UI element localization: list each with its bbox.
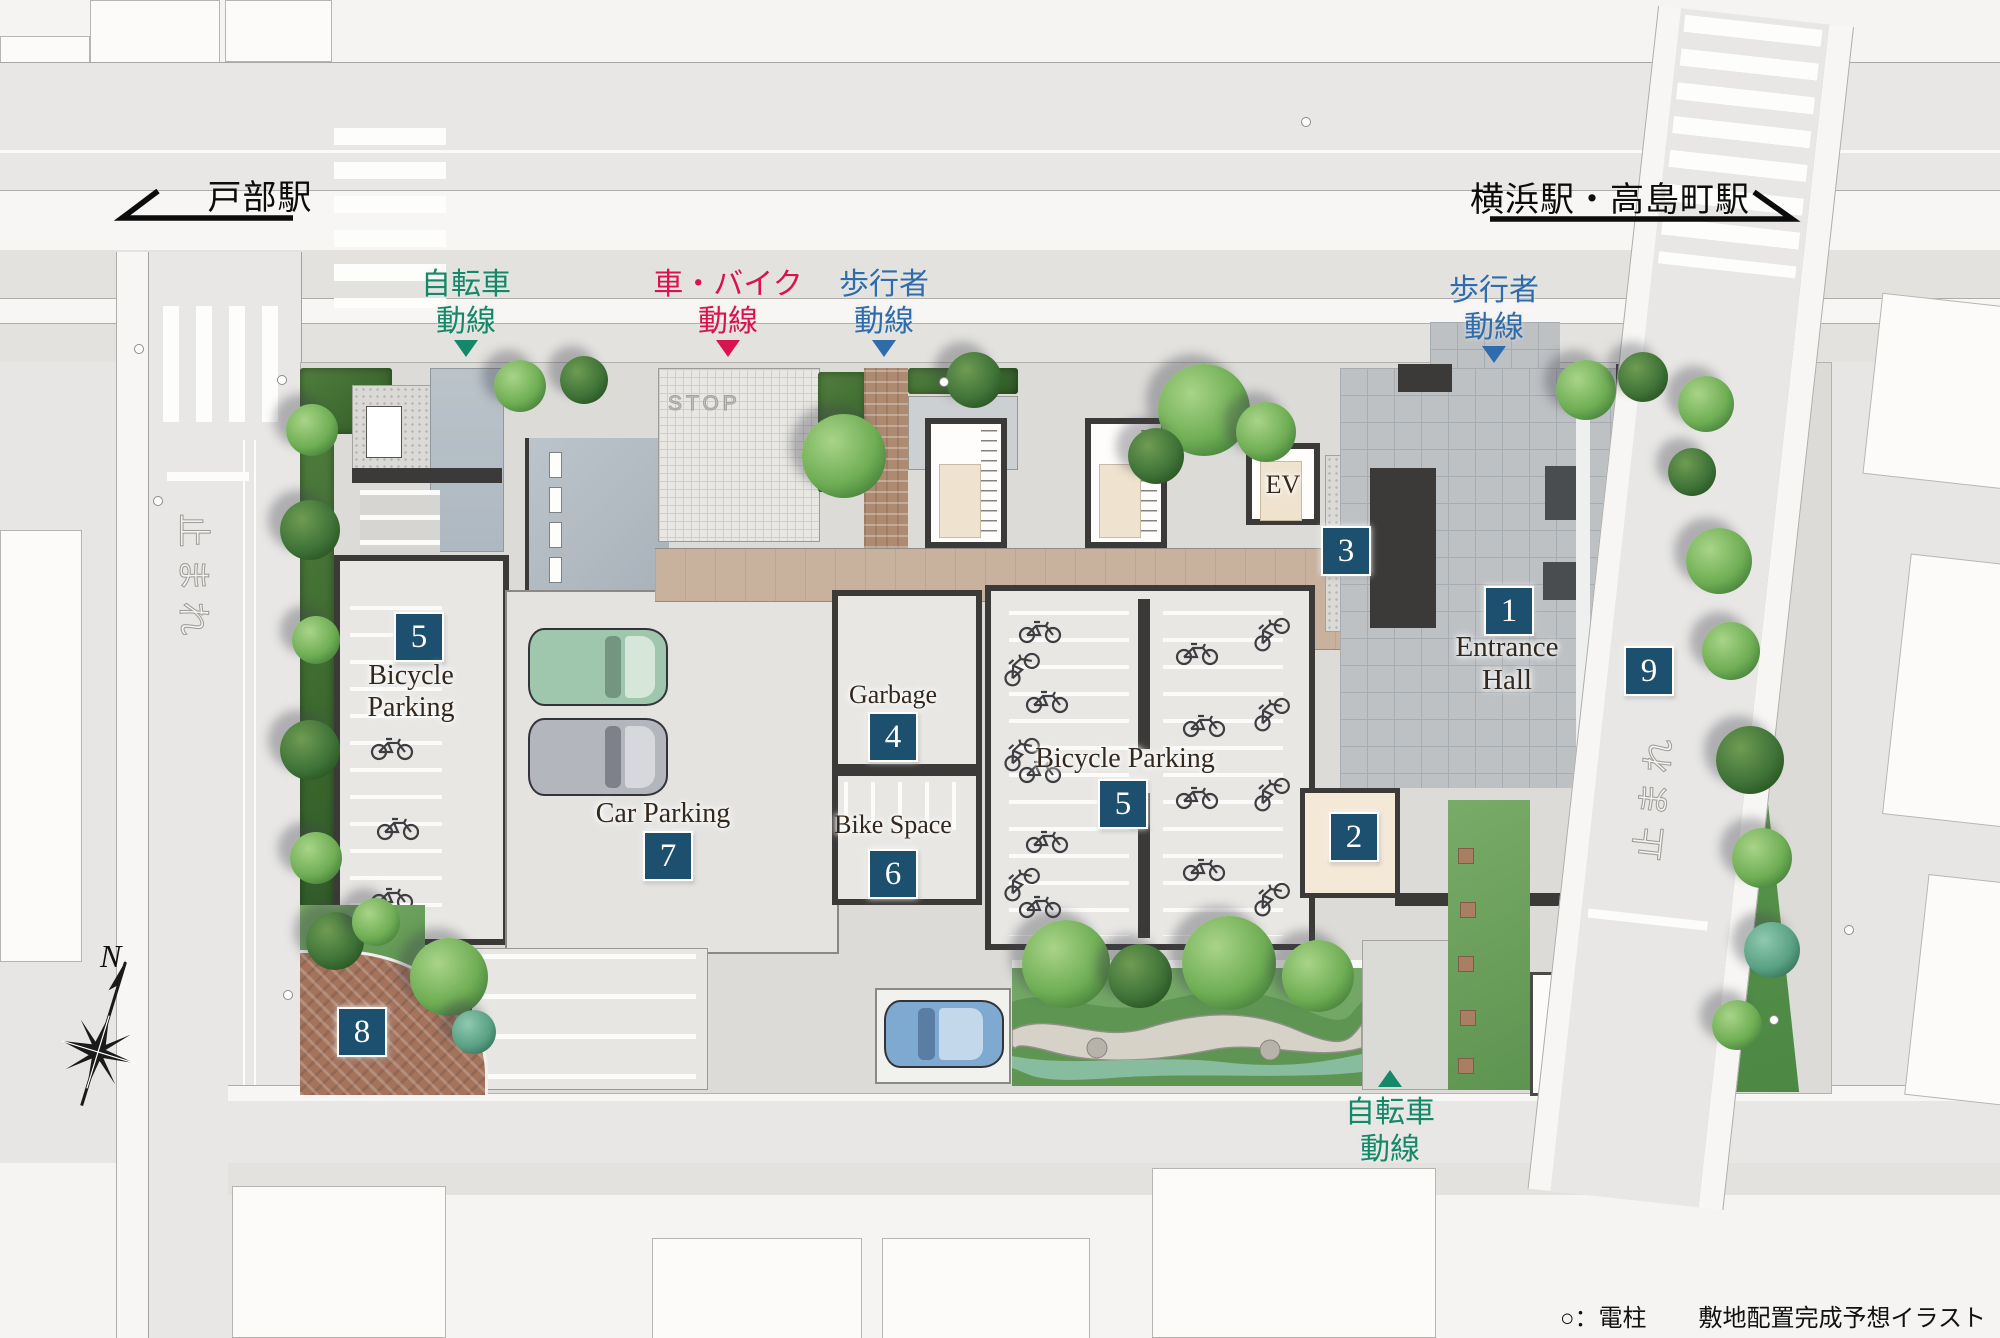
car-gray [528, 718, 668, 796]
context-building [1904, 874, 2000, 1108]
vent-slot [549, 522, 562, 548]
tree [1236, 402, 1296, 462]
vent-slot [549, 452, 562, 478]
tree [560, 356, 608, 404]
tree [1668, 448, 1716, 496]
elevator-label: EV [1248, 470, 1318, 500]
tree [1108, 944, 1172, 1008]
flow-car-bike-arrow [716, 340, 740, 357]
tree [1556, 360, 1616, 420]
station-label-yokohama: 横浜駅・高島町駅 [1455, 172, 1765, 221]
tree [802, 414, 886, 498]
label-garbage: Garbage [828, 680, 958, 710]
context-building [1152, 1168, 1436, 1338]
badge-bike-space: 6 [868, 849, 918, 899]
context-building [652, 1238, 862, 1338]
context-building [1882, 554, 2000, 829]
badge-garbage: 4 [868, 712, 918, 762]
badge-bicycle-main: 5 [1098, 779, 1148, 829]
flow-bicycle-top-arrow [454, 340, 478, 357]
skylight [366, 406, 402, 458]
utility-pole [1769, 1015, 1779, 1025]
utility-pole [1301, 117, 1311, 127]
tree [1744, 922, 1800, 978]
road-paint-stop: STOP [668, 392, 741, 416]
bicycle-exit-path [1362, 940, 1456, 1090]
wall [352, 468, 502, 483]
stop-line [1588, 909, 1708, 931]
badge-approach: 3 [1321, 526, 1371, 576]
utility-pole [1844, 925, 1854, 935]
context-building [882, 1238, 1090, 1338]
tree [1702, 622, 1760, 680]
badge-lobby: 2 [1329, 812, 1379, 862]
label-car-parking: Car Parking [563, 798, 763, 830]
tree [352, 898, 400, 946]
context-building [1862, 293, 2000, 489]
west-sidewalk [116, 252, 149, 1338]
utility-pole [277, 375, 287, 385]
flow-bicycle-top: 自転車動線 [386, 266, 546, 340]
crosswalk [1658, 15, 1823, 279]
tree [1282, 940, 1354, 1012]
tree [1618, 352, 1668, 402]
tree [290, 832, 342, 884]
tree [946, 352, 1002, 408]
south-road-verge [228, 1163, 2000, 1195]
legend-caption: 敷地配置完成予想イラスト [1698, 1298, 1986, 1333]
tree [1712, 1000, 1762, 1050]
badge-corner-plaza: 8 [337, 1007, 387, 1057]
tree [280, 500, 340, 560]
context-building [0, 530, 82, 962]
flow-pedestrian-right: 歩行者動線 [1414, 272, 1574, 346]
label-bike-space: Bike Space [808, 810, 978, 840]
vent-slot [549, 487, 562, 513]
tree [494, 360, 546, 412]
badge-entrance-hall: 1 [1484, 586, 1534, 636]
tree [292, 616, 340, 664]
label-bicycle-parking-main: Bicycle Parking [1020, 743, 1230, 775]
flow-car-bike: 車・バイク動線 [628, 266, 828, 340]
flow-bicycle-bottom: 自転車動線 [1310, 1094, 1470, 1168]
crosswalk [163, 306, 288, 422]
tree [286, 404, 338, 456]
car-blue [884, 1000, 1004, 1068]
east-lawn-strip [1448, 800, 1530, 1090]
tree [1128, 428, 1184, 484]
stop-line [167, 472, 249, 481]
label-bicycle-parking-west: Bicycle Parking [331, 660, 491, 724]
tree [452, 1010, 496, 1054]
bicycle-ramp [430, 368, 504, 552]
tree [1732, 828, 1792, 888]
utility-pole [283, 990, 293, 1000]
road-paint-tomare: 止まれ [172, 514, 221, 646]
wall [1398, 364, 1452, 392]
badge-side-garden: 9 [1624, 646, 1674, 696]
flow-pedestrian-right-arrow [1482, 346, 1506, 363]
utility-pole [134, 344, 144, 354]
flow-pedestrian-left: 歩行者動線 [804, 266, 964, 340]
label-entrance-hall: Entrance Hall [1407, 631, 1607, 697]
vent-slot [549, 557, 562, 583]
site-plan-illustration: 止まれ STOP [0, 0, 2000, 1338]
center-line [243, 440, 256, 1090]
utility-pole [939, 377, 949, 387]
legend-utility-pole: ○：電柱 [1560, 1298, 1647, 1333]
compass-north-label: N [100, 938, 121, 975]
tree [1022, 920, 1110, 1008]
legend: ○：電柱 敷地配置完成予想イラスト [1560, 1298, 1986, 1333]
tree [280, 720, 340, 780]
tree [1182, 916, 1276, 1010]
utility-pole [153, 496, 163, 506]
station-label-tobe: 戸部駅 [150, 170, 370, 219]
flow-pedestrian-left-arrow [872, 340, 896, 357]
badge-bicycle-west: 5 [394, 612, 444, 662]
garage-stalls [482, 954, 696, 1084]
stair-core [925, 418, 1007, 548]
tree [1716, 726, 1784, 794]
context-building [232, 1186, 446, 1338]
context-building [225, 0, 332, 62]
badge-car-parking: 7 [643, 831, 693, 881]
parking-canopy [525, 438, 669, 591]
wall [1370, 468, 1436, 628]
tree [1686, 528, 1752, 594]
tree [410, 938, 488, 1016]
road-paint-tomare: 止まれ [1620, 726, 1683, 863]
car-green [528, 628, 668, 706]
flow-bicycle-bottom-arrow [1378, 1070, 1402, 1087]
tree [1678, 376, 1734, 432]
